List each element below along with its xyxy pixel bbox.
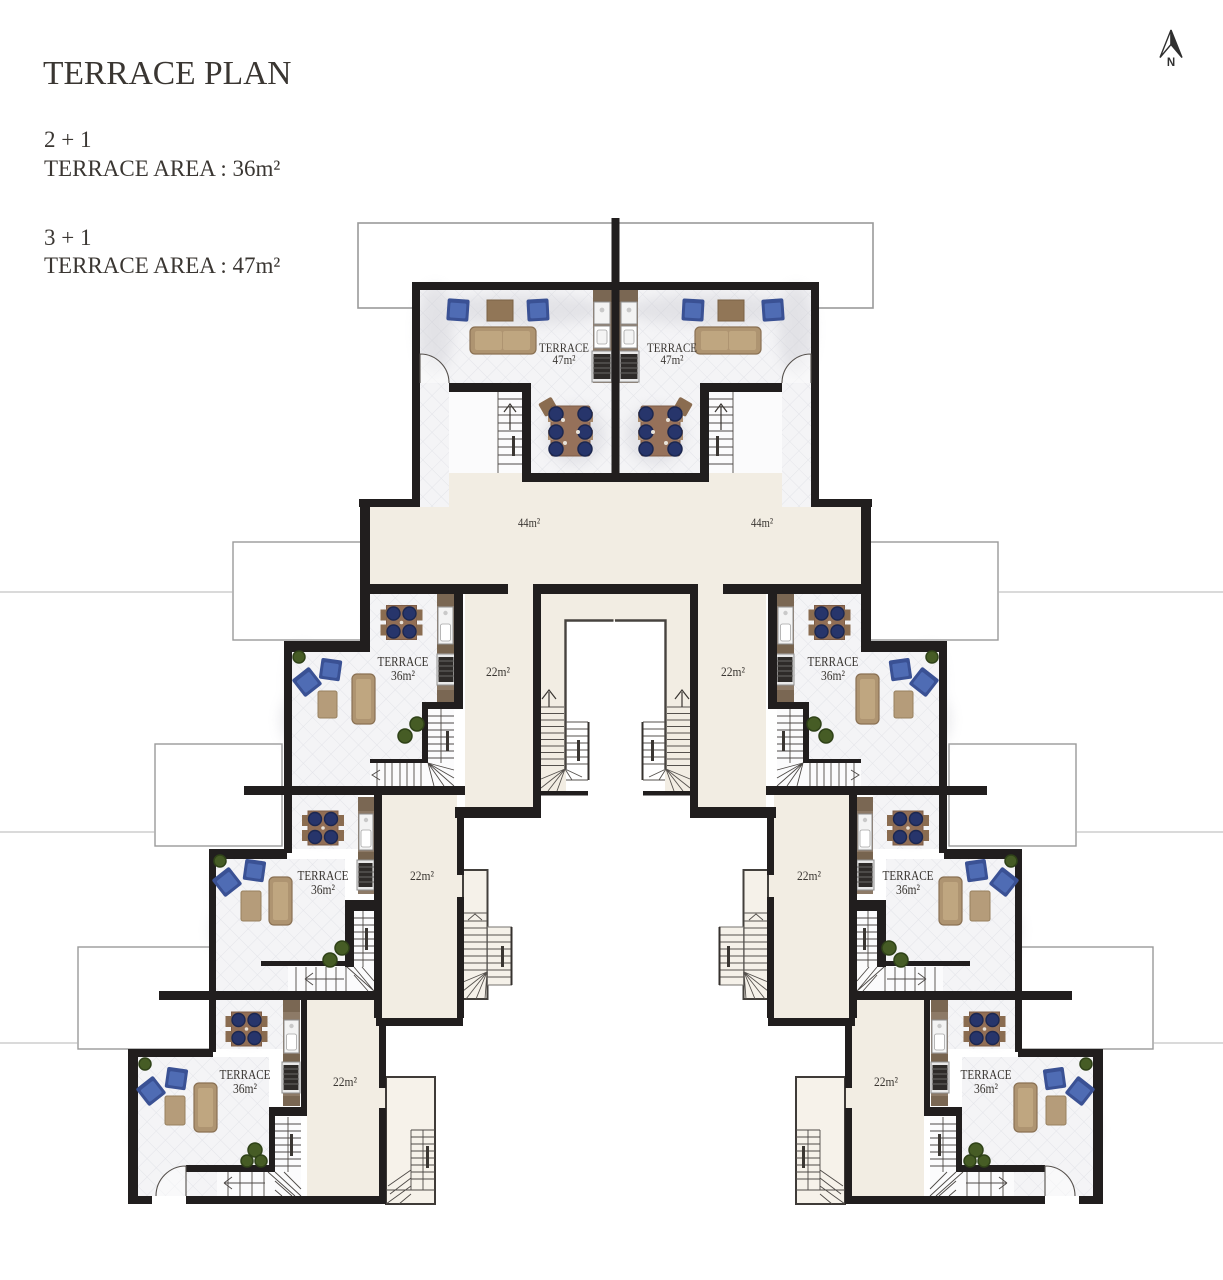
svg-text:2 + 1: 2 + 1: [44, 127, 91, 152]
svg-text:22m²: 22m²: [410, 868, 434, 883]
svg-text:36m²: 36m²: [896, 883, 920, 898]
svg-text:22m²: 22m²: [333, 1074, 357, 1089]
svg-text:36m²: 36m²: [821, 669, 845, 684]
svg-text:47m²: 47m²: [661, 352, 684, 367]
svg-text:22m²: 22m²: [874, 1074, 898, 1089]
svg-text:36m²: 36m²: [391, 669, 415, 684]
svg-text:22m²: 22m²: [486, 664, 510, 679]
svg-text:TERRACE: TERRACE: [378, 655, 429, 670]
svg-text:TERRACE PLAN: TERRACE PLAN: [43, 55, 291, 92]
svg-text:44m²: 44m²: [518, 515, 540, 530]
svg-text:3 + 1: 3 + 1: [44, 225, 91, 250]
svg-text:TERRACE AREA : 36m²: TERRACE AREA : 36m²: [44, 156, 280, 181]
svg-text:44m²: 44m²: [751, 515, 773, 530]
svg-text:TERRACE: TERRACE: [298, 869, 349, 884]
svg-text:TERRACE AREA : 47m²: TERRACE AREA : 47m²: [44, 253, 280, 278]
svg-text:36m²: 36m²: [233, 1082, 257, 1097]
svg-text:36m²: 36m²: [311, 883, 335, 898]
svg-text:N: N: [1167, 57, 1175, 69]
svg-text:TERRACE: TERRACE: [808, 655, 859, 670]
svg-text:TERRACE: TERRACE: [883, 869, 934, 884]
svg-text:47m²: 47m²: [553, 352, 576, 367]
svg-text:22m²: 22m²: [797, 868, 821, 883]
svg-text:22m²: 22m²: [721, 664, 745, 679]
svg-text:TERRACE: TERRACE: [961, 1068, 1012, 1083]
svg-text:TERRACE: TERRACE: [220, 1068, 271, 1083]
svg-text:36m²: 36m²: [974, 1082, 998, 1097]
